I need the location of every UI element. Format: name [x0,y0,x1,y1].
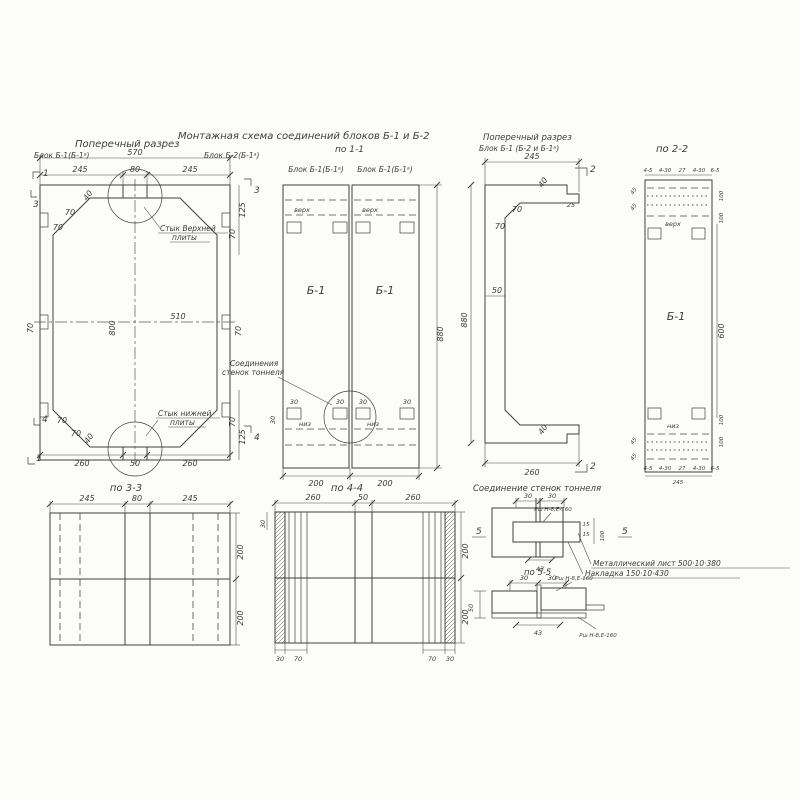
assembly-d30-1: 30 [290,398,298,406]
assembly-embed-plates [287,222,414,419]
section-33-outline [50,513,230,645]
assembly-block-a: Б-1 [307,284,326,297]
joint-15a: 15 [583,522,590,528]
plan-dim-50: 50 [130,459,140,468]
assembly-dashed-lines [285,200,417,445]
section-55-ticks [507,580,569,628]
s22-top-dim-c: 27 [679,168,686,174]
channel-mark-2-bottom: 2 [590,462,596,472]
plan-dim-70-ml: 70 [26,323,35,333]
joint-mark-5-right: 5 [622,527,628,537]
section-55-view: по 5-5 30 30 Рш Н-8,Е-160 50 43 Рш Н-8,Е… [458,563,800,658]
s22-bot-dim-e: 6-5 [711,466,720,472]
plan-dim-260-r: 260 [182,459,197,468]
plan-dim-40-bot: 40 [82,432,95,446]
assembly-callout-2: стенок тоннеля [222,368,285,377]
section-22-title: по 2-2 [656,144,688,155]
drawing-sheet: Монтажная схема соединений блоков Б-1 и … [0,0,800,800]
s22-100-3: 100 [719,414,725,425]
assembly-joint-circle [324,391,376,443]
s22-top-dim-e: 6-5 [711,168,720,174]
assembly-verh-a: верх [294,206,310,214]
s44-260-l: 260 [305,493,320,502]
assembly-view: Блок Б-1(Б-1ᵃ) Блок Б-1(Б-1ᵃ) верх верх … [220,158,470,488]
assembly-niz-b: низ [367,420,379,428]
plan-mark-1-bottom: 1 [36,454,42,464]
s22-bot-dim-b: 4-30 [659,466,672,472]
s33-80: 80 [132,494,142,503]
assembly-niz-a: низ [299,420,311,428]
s22-600: 600 [717,323,726,338]
s55-weld-top: Рш Н-8,Е-160 [555,576,593,582]
plan-dim-510: 510 [170,312,185,321]
joint-30a: 30 [524,492,532,500]
s22-45-2: 45 [630,202,639,212]
s33-200-b: 200 [236,610,245,625]
section-44-outline [275,512,455,643]
plan-dim-70-bl1: 70 [57,416,67,425]
section-33-dim-lines [50,501,240,645]
joint-weld: Рш Н-8,Е-160 [534,507,572,513]
assembly-panel-a-label: Блок Б-1(Б-1ᵃ) [288,165,344,174]
section-44-view: по 4-4 [255,478,480,678]
section-55-bottom-strap [492,613,586,618]
s55-weld-bottom: Рш Н-8,Е-160 [579,633,617,639]
s33-245-r: 245 [182,494,197,503]
assembly-callout-leader [278,377,332,405]
assembly-d30-3: 30 [359,398,367,406]
s44-70-br: 70 [428,655,436,663]
channel-dim-50: 50 [492,286,502,295]
assembly-panel-b-label: Блок Б-1(Б-1ᵃ) [357,165,413,174]
assembly-dim-ticks [280,182,440,479]
channel-view: Поперечный разрез Блок Б-1 (Б-2 и Б-1ᵃ) … [455,128,605,483]
section-22-block: Б-1 [667,310,686,323]
plan-dim-800: 800 [108,320,117,335]
plan-dim-70-tl1: 70 [65,208,75,217]
channel-dim-70-1: 70 [512,205,522,214]
assembly-verh-b: верх [362,206,378,214]
section-22-verh: верх [665,220,681,228]
joint-30b: 30 [548,492,556,500]
plan-mark-4-left: 4 [42,415,48,425]
channel-dim-40-top: 40 [536,176,549,190]
section-22-embed-plates [648,228,705,419]
channel-dim-25: 25 [567,201,575,209]
s44-30-br: 30 [446,655,454,663]
assembly-d30-2: 30 [336,398,344,406]
s22-top-dim-a: 4-5 [644,168,653,174]
assembly-d30-5: 30 [269,416,277,424]
channel-section-flags [575,168,587,472]
section-22-top-rebar [647,188,710,216]
s22-45-1: 45 [630,186,639,196]
joint-100: 100 [600,530,606,541]
channel-title-1: Поперечный разрез [483,133,572,143]
assembly-section-label: по 1-1 [335,145,364,155]
joint-15b: 15 [583,532,590,538]
plan-dim-40-top: 40 [81,189,94,203]
s22-bot-dim-d: 4-30 [693,466,706,472]
s33-200-t: 200 [236,544,245,559]
assembly-dim-lines [283,185,442,480]
channel-dim-70-2: 70 [495,222,505,231]
plan-dim-70-tl2: 70 [53,223,63,232]
section-33-title: по 3-3 [110,483,142,494]
joint-title: Соединение стенок тоннеля [473,484,601,494]
section-22-dim-lines [645,175,717,476]
s44-30-bl: 30 [276,655,284,663]
s44-30-top: 30 [259,520,267,528]
section-22-bottom-rebar [647,434,710,459]
assembly-d30-4: 30 [403,398,411,406]
plan-bot-joint-note-1: Стык нижней [158,409,211,418]
joint-mark-5-left: 5 [476,527,482,537]
plan-dim-70-bl2: 70 [71,429,81,438]
s22-bot-dim-c: 27 [679,466,686,472]
s44-260-r: 260 [405,493,420,502]
plan-dim-260-l: 260 [74,459,89,468]
s55-30a: 30 [520,574,528,582]
s44-50: 50 [358,493,368,502]
channel-dim-880: 880 [460,312,469,327]
plan-dim-570: 570 [127,148,142,157]
plan-top-joint-note-1: Стык Верхней [160,224,216,233]
section-22-niz: низ [667,422,679,430]
s22-45-3: 45 [630,436,639,446]
s22-100-2: 100 [719,212,725,223]
channel-dim-260: 260 [524,468,539,477]
channel-mark-2-top: 2 [590,165,596,175]
channel-dim-lines [471,158,579,467]
s44-70-bl: 70 [294,655,302,663]
s55-50: 50 [467,604,475,612]
plan-dim-245-l: 245 [72,165,87,174]
section-33-view: по 3-3 245 80 245 200 200 [30,478,260,673]
s22-top-dim-d: 4-30 [693,168,706,174]
s22-top-dim-b: 4-30 [659,168,672,174]
joint-strap-plate [513,522,580,542]
assembly-block-b: Б-1 [376,284,395,297]
section-55-left-wall [492,591,537,613]
section-55-right-wall [541,588,586,610]
plan-top-joint-note-2: плиты [172,233,197,242]
section-55-side-plate [586,605,604,610]
s55-43: 43 [534,629,542,637]
plan-mark-3-left: 3 [33,200,39,210]
s33-245-l: 245 [79,494,94,503]
plan-mark-1-top: 1 [43,169,49,179]
s22-100-1: 100 [719,190,725,201]
plan-dim-245-r: 245 [182,165,197,174]
s22-45-4: 45 [630,452,639,462]
assembly-dim-880: 880 [436,326,445,341]
plan-dim-80: 80 [130,165,140,174]
channel-dim-245: 245 [524,152,539,161]
plan-bot-joint-note-2: плиты [170,418,195,427]
assembly-callout-1: Соединения [230,359,279,368]
s22-bot-dim-a: 4-5 [644,466,653,472]
section-22-view: по 2-2 верх низ Б-1 4-5 4-30 27 4- [618,128,800,488]
s22-100-4: 100 [719,436,725,447]
channel-title-2: Блок Б-1 (Б-2 и Б-1ᵃ) [479,144,559,153]
